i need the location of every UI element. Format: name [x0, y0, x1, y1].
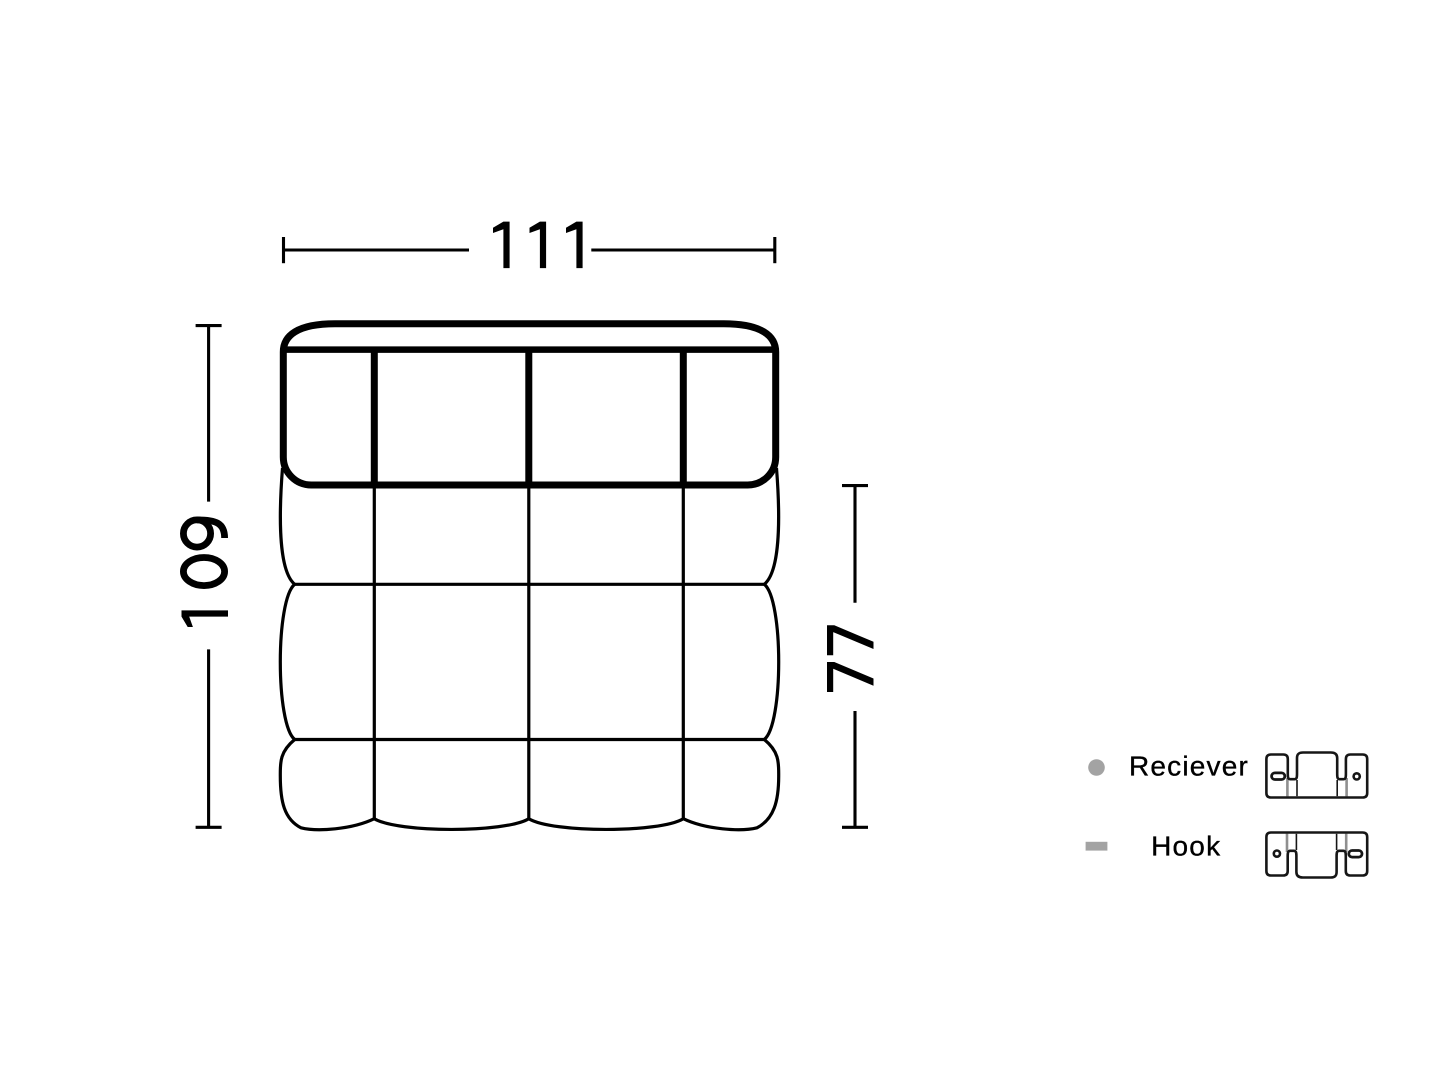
svg-text:Reciever: Reciever [1129, 751, 1249, 782]
svg-text:Hook: Hook [1151, 831, 1221, 862]
